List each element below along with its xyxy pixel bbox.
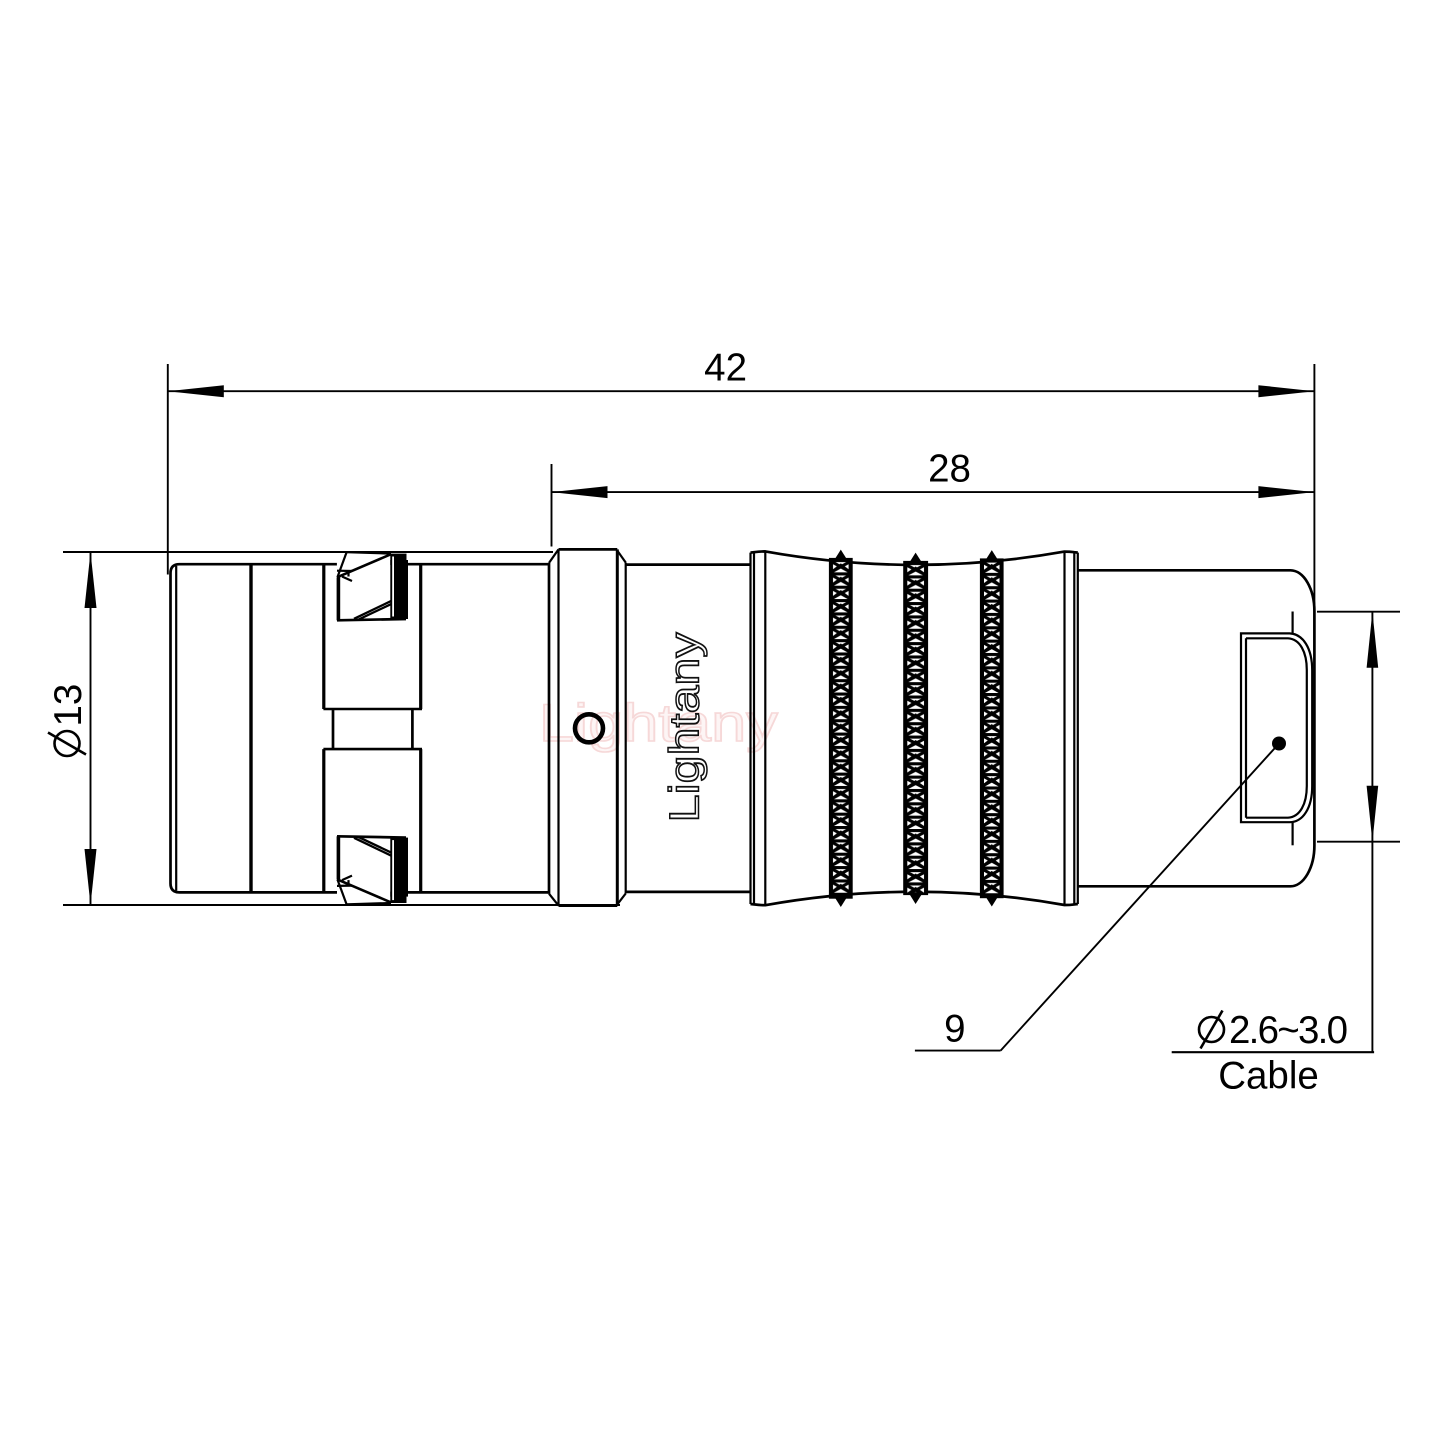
svg-text:Lightany: Lightany [660, 632, 707, 822]
svg-text:Cable: Cable [1218, 1055, 1319, 1098]
svg-text:9: 9 [944, 1008, 965, 1051]
svg-text:42: 42 [704, 347, 747, 390]
svg-text:13: 13 [47, 684, 90, 727]
svg-text:2.6~3.0: 2.6~3.0 [1229, 1009, 1348, 1052]
svg-text:28: 28 [928, 448, 971, 491]
